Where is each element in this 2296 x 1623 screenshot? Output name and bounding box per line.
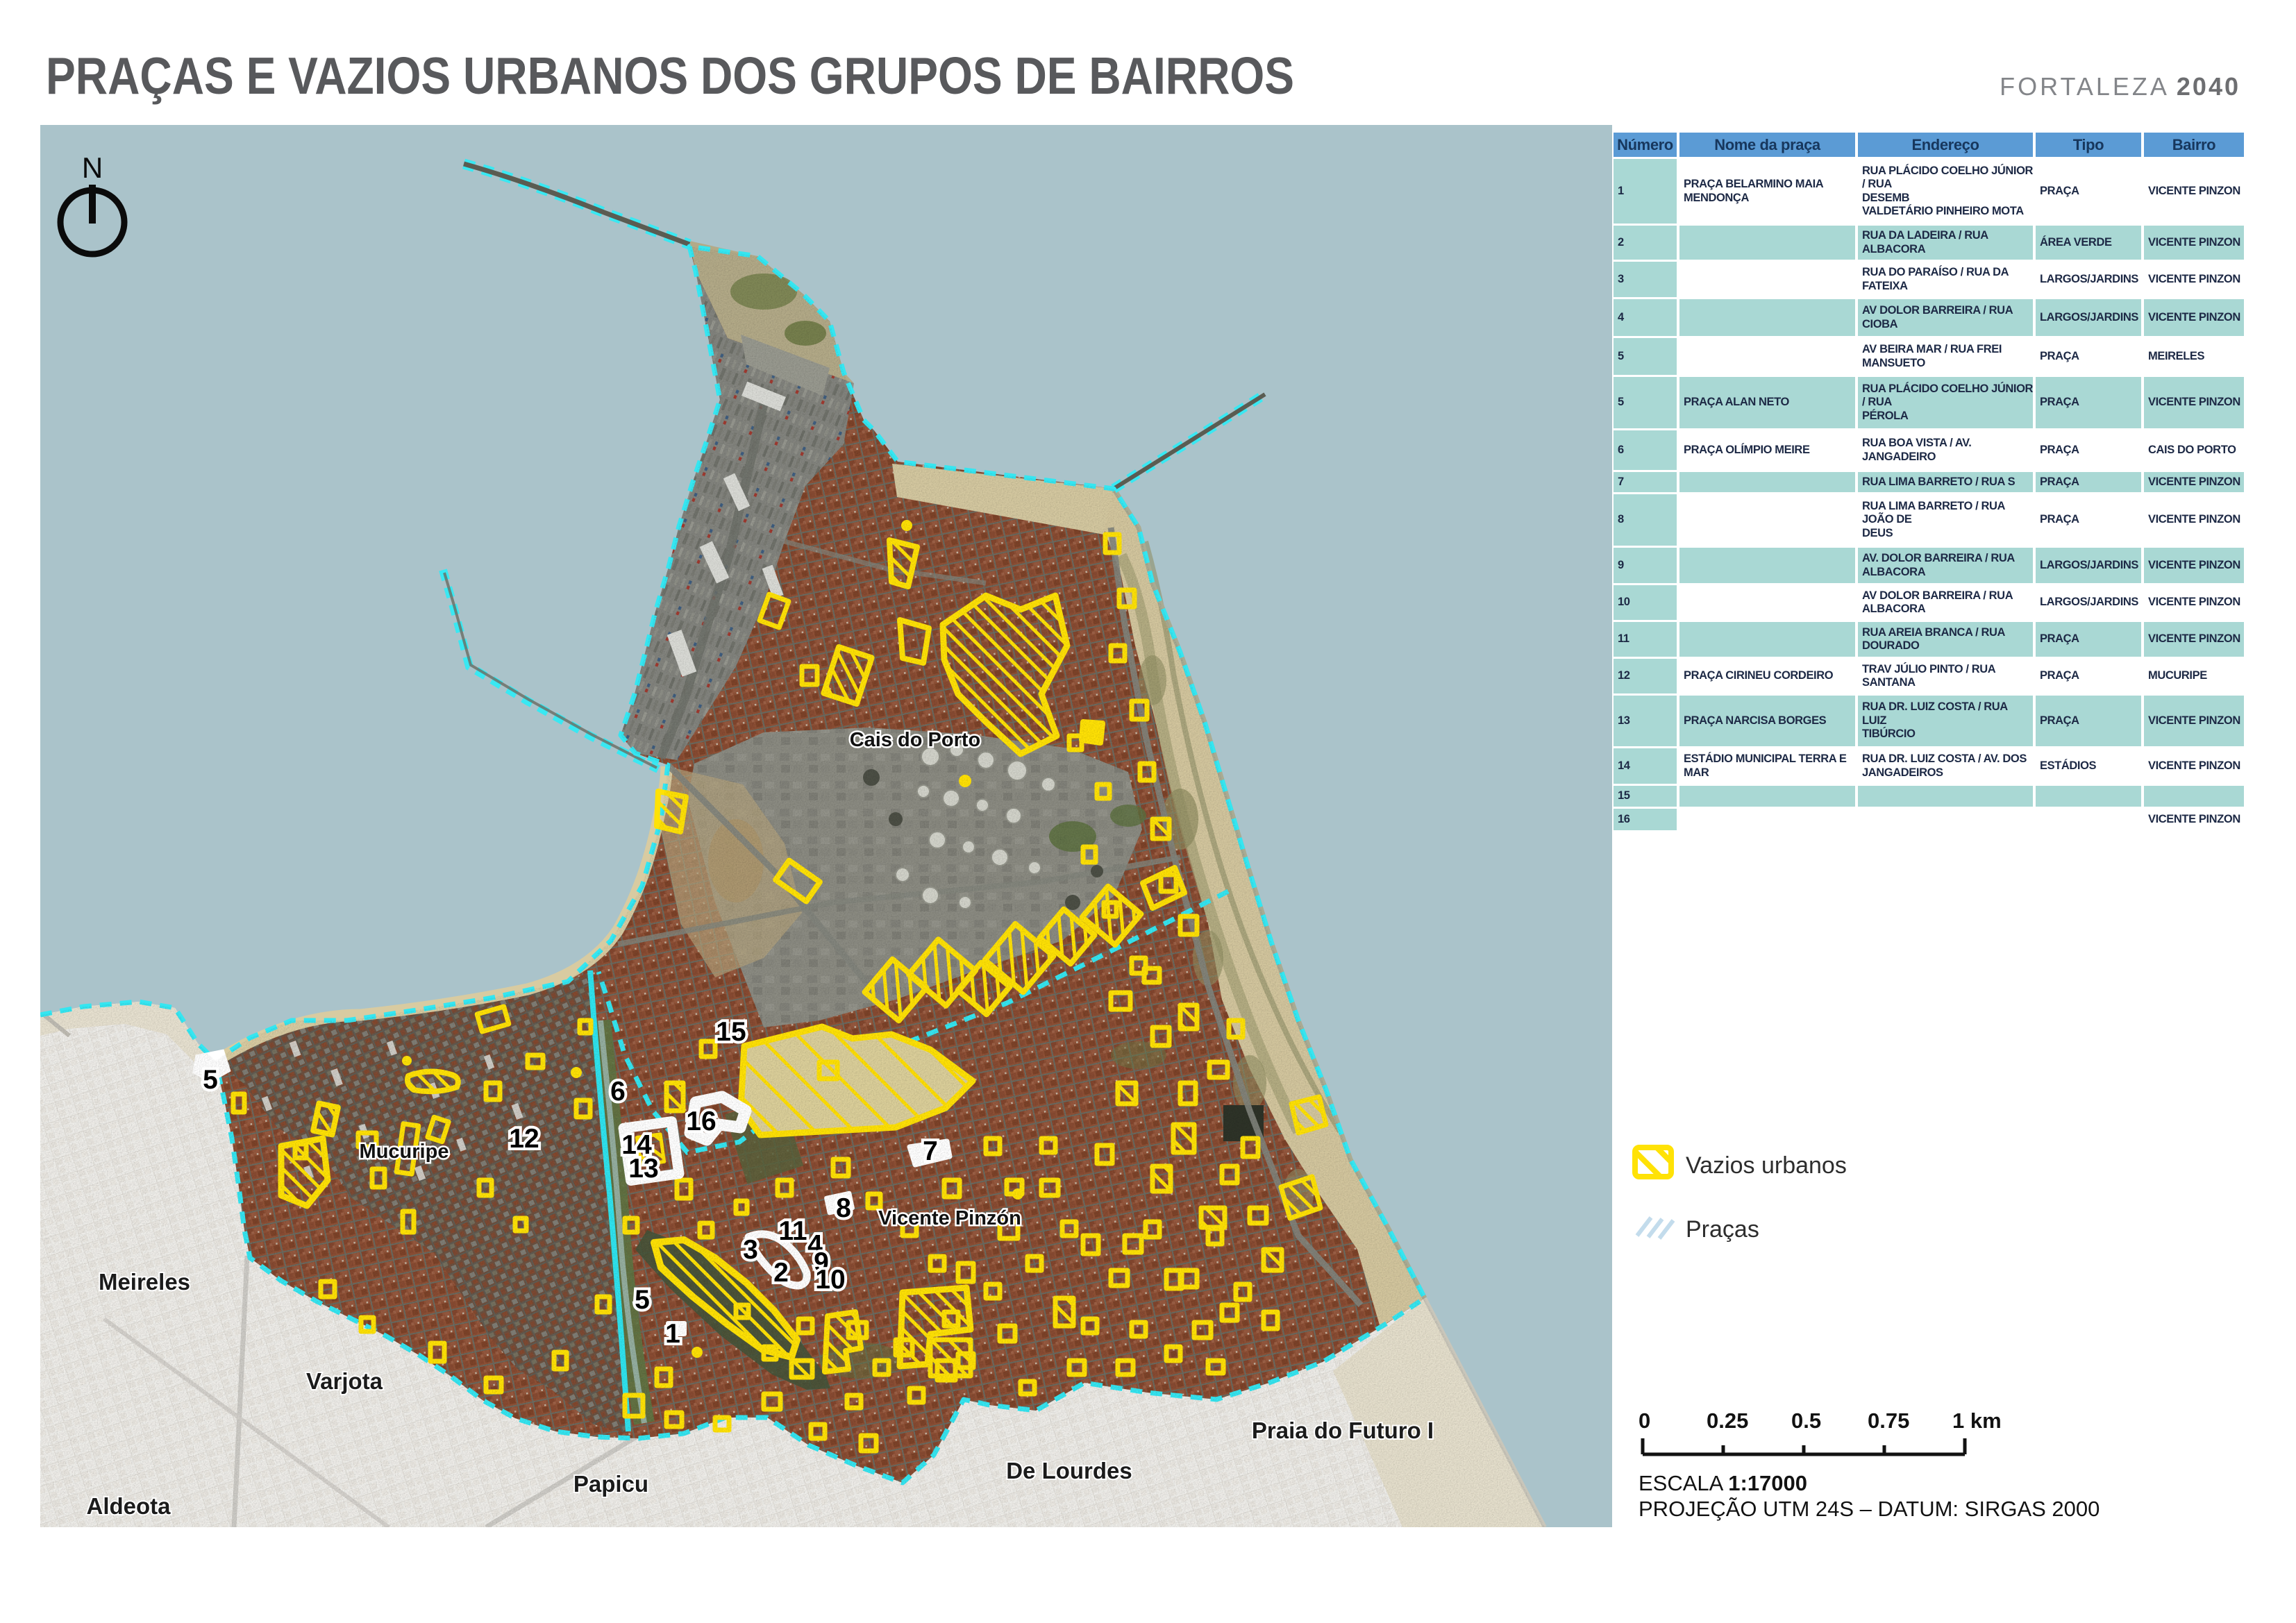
- svg-text:Praças: Praças: [1686, 1216, 1759, 1243]
- svg-text:2: 2: [773, 1258, 789, 1288]
- svg-text:16: 16: [686, 1107, 716, 1136]
- svg-text:5: 5: [203, 1065, 218, 1095]
- svg-text:0: 0: [1639, 1408, 1650, 1433]
- svg-text:Mucuripe: Mucuripe: [360, 1141, 449, 1163]
- svg-text:7: 7: [923, 1136, 938, 1166]
- svg-text:12: 12: [509, 1124, 539, 1154]
- svg-text:6: 6: [610, 1077, 626, 1107]
- svg-text:De Lourdes: De Lourdes: [1006, 1458, 1132, 1483]
- svg-text:1: 1: [665, 1319, 680, 1349]
- svg-text:Vazios urbanos: Vazios urbanos: [1686, 1152, 1847, 1179]
- svg-text:Papicu: Papicu: [573, 1471, 648, 1497]
- svg-text:0.5: 0.5: [1791, 1408, 1821, 1433]
- svg-text:Vicente Pinzón: Vicente Pinzón: [878, 1207, 1021, 1229]
- svg-text:ESCALA 1:17000: ESCALA 1:17000: [1639, 1471, 1807, 1495]
- svg-text:Varjota: Varjota: [306, 1368, 383, 1394]
- svg-text:3: 3: [743, 1235, 758, 1265]
- svg-text:1 km: 1 km: [1952, 1408, 2002, 1433]
- svg-text:11: 11: [778, 1216, 807, 1246]
- svg-text:5: 5: [635, 1285, 650, 1315]
- svg-text:0.25: 0.25: [1707, 1408, 1748, 1433]
- svg-text:Praia do Futuro I: Praia do Futuro I: [1252, 1418, 1434, 1443]
- svg-text:N: N: [82, 151, 103, 184]
- svg-text:0.75: 0.75: [1868, 1408, 1909, 1433]
- svg-text:Cais do Porto: Cais do Porto: [850, 729, 981, 751]
- svg-text:Meireles: Meireles: [99, 1269, 190, 1295]
- svg-text:13: 13: [628, 1154, 658, 1184]
- svg-text:8: 8: [836, 1193, 851, 1223]
- svg-text:15: 15: [716, 1017, 746, 1047]
- svg-text:10: 10: [815, 1265, 845, 1295]
- svg-text:Aldeota: Aldeota: [86, 1493, 171, 1519]
